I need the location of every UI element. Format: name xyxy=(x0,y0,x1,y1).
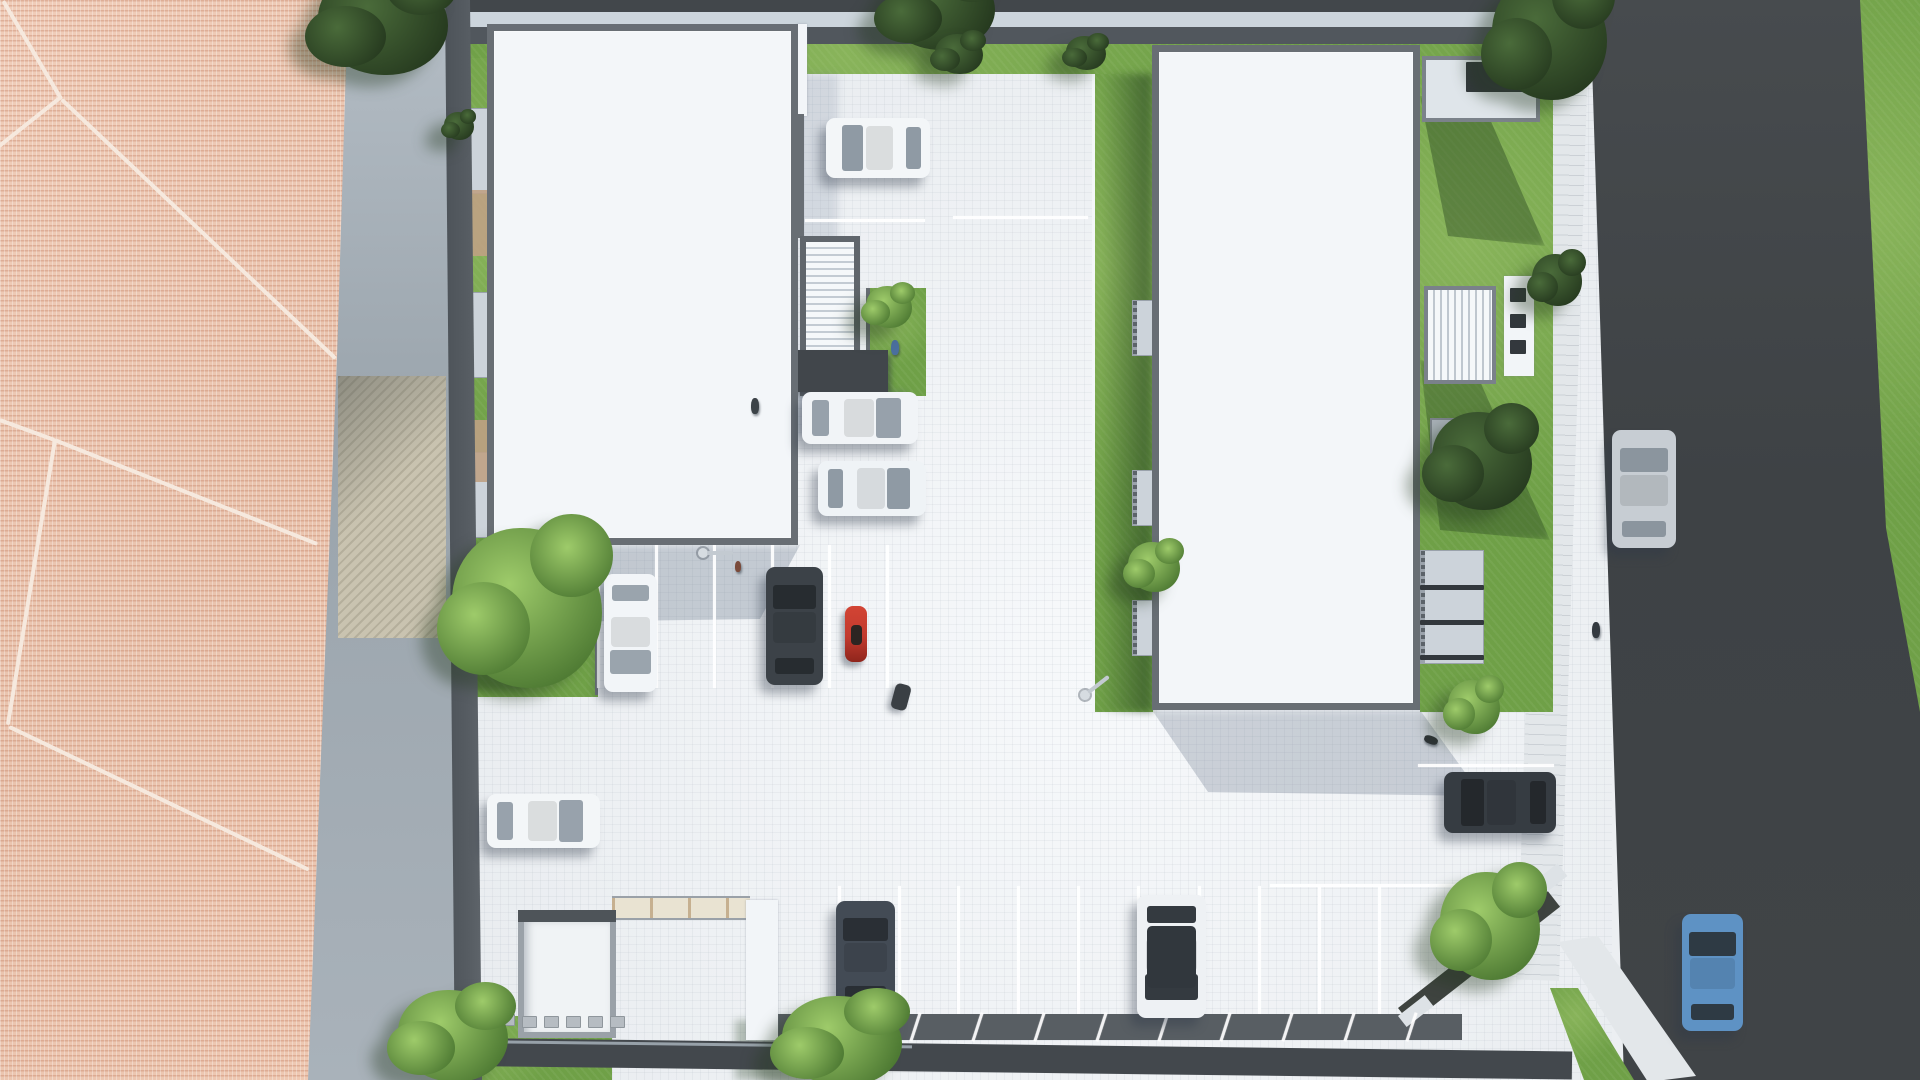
dog xyxy=(1423,734,1439,746)
car-white-entry-1-roof xyxy=(844,399,874,438)
tree-light xyxy=(782,996,902,1080)
person xyxy=(891,340,899,355)
car-white-mid-roof xyxy=(611,617,650,648)
car-blue-road xyxy=(1682,914,1743,1031)
street-lamp xyxy=(1078,688,1092,702)
car-white-top xyxy=(826,118,930,178)
car-dark-mid-roof xyxy=(773,612,815,643)
suv-white-bottom-glass xyxy=(1145,974,1197,1000)
tree-light-large xyxy=(452,528,602,688)
bush-dark xyxy=(935,34,983,74)
car-white-entry-2-roof xyxy=(857,468,885,509)
motorcycle-parked xyxy=(890,682,912,711)
detail-layer xyxy=(0,0,1920,1080)
car-white-entry-2 xyxy=(818,461,926,516)
car-white-entry-1-glass xyxy=(812,400,828,436)
car-white-top-glass xyxy=(842,125,864,171)
car-blue-road-glass xyxy=(1691,1004,1734,1020)
car-dark-mid-glass xyxy=(775,658,815,675)
car-dark-bottom-glass xyxy=(843,918,888,941)
tree-dark-planter xyxy=(1432,412,1532,510)
tree-dark xyxy=(318,0,448,75)
car-white-mid-glass xyxy=(612,585,649,602)
child xyxy=(735,561,741,572)
car-blue-road-glass xyxy=(1689,932,1735,957)
scene xyxy=(0,0,1920,1080)
car-white-west-roof xyxy=(528,801,557,841)
car-white-west-glass xyxy=(559,800,583,841)
car-dark-bottom-roof xyxy=(844,943,888,972)
tree-dark xyxy=(1492,0,1607,100)
car-white-mid xyxy=(604,574,657,692)
person xyxy=(1592,622,1600,638)
car-white-entry-1-glass xyxy=(876,398,900,438)
car-dark-east-roof xyxy=(1487,780,1516,825)
car-white-top-glass xyxy=(906,127,921,169)
motorcycle-red xyxy=(845,606,867,662)
car-dark-east xyxy=(1444,772,1556,833)
street-lamp xyxy=(698,548,708,558)
bush-light xyxy=(1128,542,1180,592)
suv-white-bottom-glass xyxy=(1147,906,1195,923)
car-white-west-glass xyxy=(497,802,513,840)
bush-light xyxy=(866,286,912,328)
car-dark-mid-glass xyxy=(773,585,816,610)
tree-light xyxy=(1440,872,1540,980)
car-white-entry-2-glass xyxy=(828,469,843,508)
suv-white-bottom xyxy=(1137,895,1206,1018)
car-white-entry-2-glass xyxy=(887,468,910,510)
car-white-west xyxy=(487,794,600,848)
bush-dark xyxy=(1532,254,1582,306)
tree-light xyxy=(398,990,508,1080)
car-blue-road-roof xyxy=(1690,958,1735,988)
car-silver-road-glass xyxy=(1622,521,1667,538)
car-white-entry-1 xyxy=(802,392,918,444)
bush-dark xyxy=(444,112,474,140)
person xyxy=(751,398,759,414)
bush-light xyxy=(1448,680,1500,734)
car-silver-road-roof xyxy=(1620,475,1667,506)
car-white-mid-glass xyxy=(610,650,650,675)
car-white-top-roof xyxy=(866,126,893,170)
car-dark-east-glass xyxy=(1461,779,1485,825)
suv-white-bottom-roof xyxy=(1146,939,1197,971)
car-dark-east-glass xyxy=(1530,781,1546,824)
bush-dark xyxy=(1066,36,1106,70)
car-silver-road xyxy=(1612,430,1676,548)
car-silver-road-glass xyxy=(1620,448,1669,473)
car-dark-mid xyxy=(766,567,823,685)
